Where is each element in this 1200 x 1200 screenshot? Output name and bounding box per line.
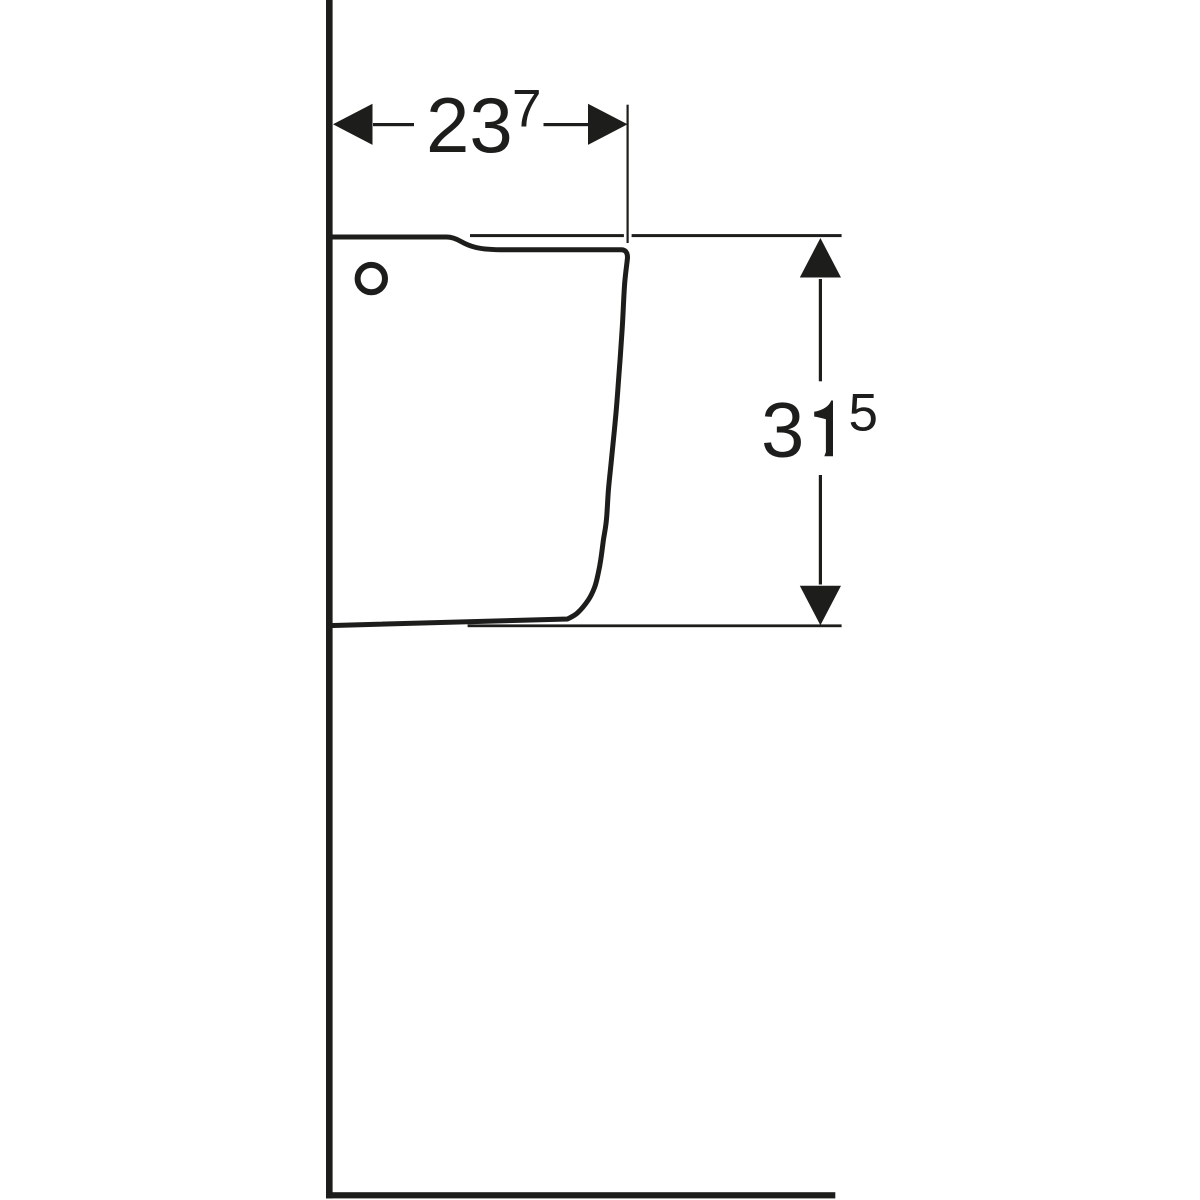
svg-text:3: 3 <box>761 385 804 473</box>
svg-text:7: 7 <box>512 79 541 138</box>
svg-text:5: 5 <box>849 384 878 443</box>
svg-text:23: 23 <box>426 81 513 169</box>
